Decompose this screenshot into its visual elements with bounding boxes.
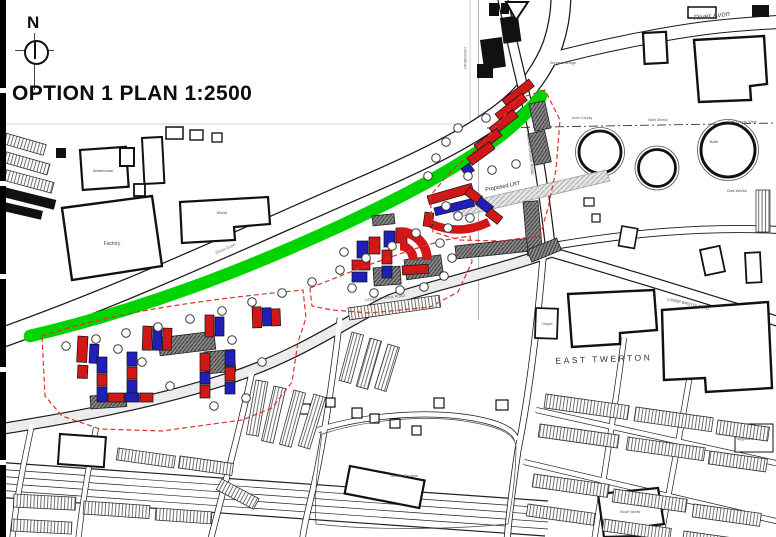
map-label-stuart-works: Stuart Works <box>620 510 641 514</box>
map-label-works: Works <box>217 211 228 215</box>
map-label-playground: Playground <box>734 437 753 441</box>
compass-needle <box>34 42 36 59</box>
plan-sheet: River AvonRiver AvonEAST TWERTONFactoryW… <box>0 0 776 537</box>
compass-icon <box>24 40 49 65</box>
gas-holder-1 <box>579 131 621 173</box>
gas-holder-2 <box>639 150 676 187</box>
map-label-east-twerton: EAST TWERTON <box>555 352 652 365</box>
map-label-gas-works: Gas Works <box>727 188 747 193</box>
map-label-windsor-bridge: Windsor Bridge <box>550 61 576 65</box>
map-label-factory: Factory <box>104 241 121 247</box>
north-label: N <box>27 13 39 33</box>
map-label-longmead: LONGMEAD <box>463 47 467 69</box>
map-label-avon-county: Avon County <box>572 116 593 120</box>
map-label-chapel: Chapel <box>542 322 553 326</box>
map-label-warehouse: Warehouse <box>93 168 114 173</box>
map-label-bath-county-west: Bath County West <box>728 120 757 124</box>
map-label-bath-district: Bath District <box>648 118 667 122</box>
map-label-bath: Bath <box>710 139 718 144</box>
map-label-norfolk-gardens: Norfolk Gardens <box>390 474 418 478</box>
gas-holder-3 <box>701 123 755 177</box>
north-arrow: N <box>0 0 70 95</box>
plan-title: OPTION 1 PLAN 1:2500 <box>12 82 252 106</box>
site-plan-map: River AvonRiver AvonEAST TWERTONFactoryW… <box>0 0 776 537</box>
